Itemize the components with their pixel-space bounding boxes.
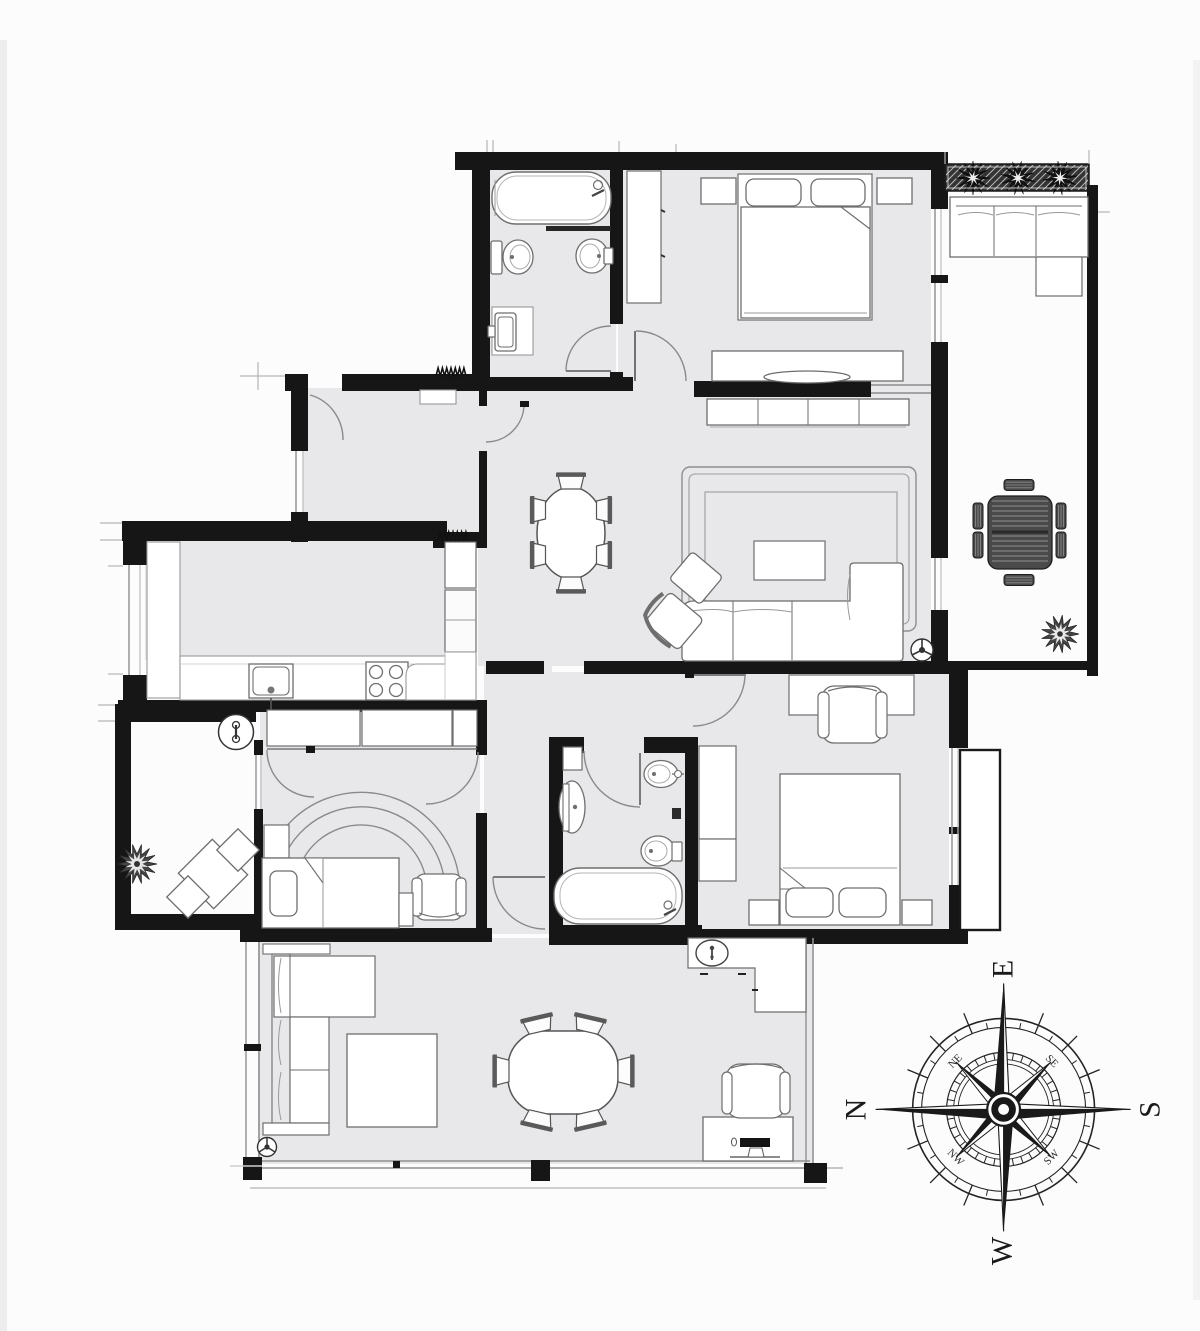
svg-text:W: W [986,1236,1019,1265]
svg-text:S: S [1134,1101,1167,1118]
svg-text:N: N [840,1099,873,1121]
svg-text:E: E [987,960,1020,978]
